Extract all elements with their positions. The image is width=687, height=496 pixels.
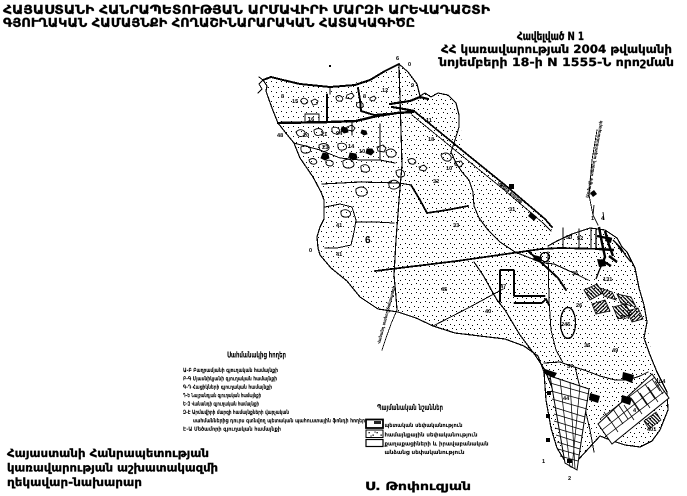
- svg-text:20: 20: [499, 183, 505, 189]
- svg-text:6: 6: [396, 56, 399, 62]
- svg-text:32: 32: [433, 179, 439, 185]
- svg-text:36: 36: [584, 343, 590, 349]
- svg-text:131: 131: [603, 277, 612, 283]
- svg-text:104: 104: [656, 379, 666, 385]
- svg-text:20: 20: [303, 133, 309, 139]
- svg-text:48: 48: [277, 133, 283, 139]
- svg-text:18: 18: [428, 137, 434, 143]
- svg-text:50: 50: [566, 235, 572, 241]
- svg-text:2: 2: [568, 476, 571, 482]
- svg-text:214: 214: [620, 315, 630, 321]
- svg-text:47: 47: [500, 284, 506, 290]
- svg-text:8: 8: [281, 94, 284, 100]
- svg-text:57: 57: [567, 364, 573, 370]
- svg-text:21: 21: [321, 132, 327, 138]
- svg-text:15: 15: [292, 99, 298, 105]
- svg-text:45: 45: [441, 287, 447, 293]
- svg-text:40: 40: [485, 309, 491, 315]
- svg-text:12: 12: [382, 88, 388, 94]
- svg-text:1: 1: [591, 216, 594, 222]
- svg-text:0: 0: [309, 248, 312, 254]
- svg-text:8: 8: [363, 94, 366, 100]
- svg-text:9: 9: [411, 83, 414, 89]
- svg-text:26: 26: [576, 303, 582, 309]
- svg-text:23: 23: [322, 145, 328, 151]
- svg-text:41: 41: [336, 252, 342, 258]
- svg-text:33: 33: [453, 223, 459, 229]
- svg-text:14: 14: [348, 144, 355, 150]
- svg-text:4: 4: [601, 216, 605, 222]
- svg-text:10: 10: [359, 149, 365, 155]
- svg-text:44: 44: [563, 396, 570, 402]
- svg-text:52: 52: [577, 236, 583, 242]
- svg-text:35: 35: [572, 271, 578, 277]
- svg-text:1: 1: [542, 459, 545, 465]
- svg-text:6: 6: [365, 235, 371, 246]
- svg-text:0: 0: [408, 62, 411, 68]
- svg-text:16: 16: [308, 117, 314, 123]
- svg-text:24: 24: [336, 131, 343, 137]
- svg-text:11: 11: [426, 118, 432, 124]
- svg-text:31: 31: [509, 207, 515, 213]
- svg-text:401: 401: [647, 427, 656, 433]
- svg-text:49: 49: [612, 348, 618, 354]
- svg-text:245: 245: [561, 322, 570, 328]
- svg-text:41: 41: [336, 223, 342, 229]
- svg-text:10: 10: [446, 166, 452, 172]
